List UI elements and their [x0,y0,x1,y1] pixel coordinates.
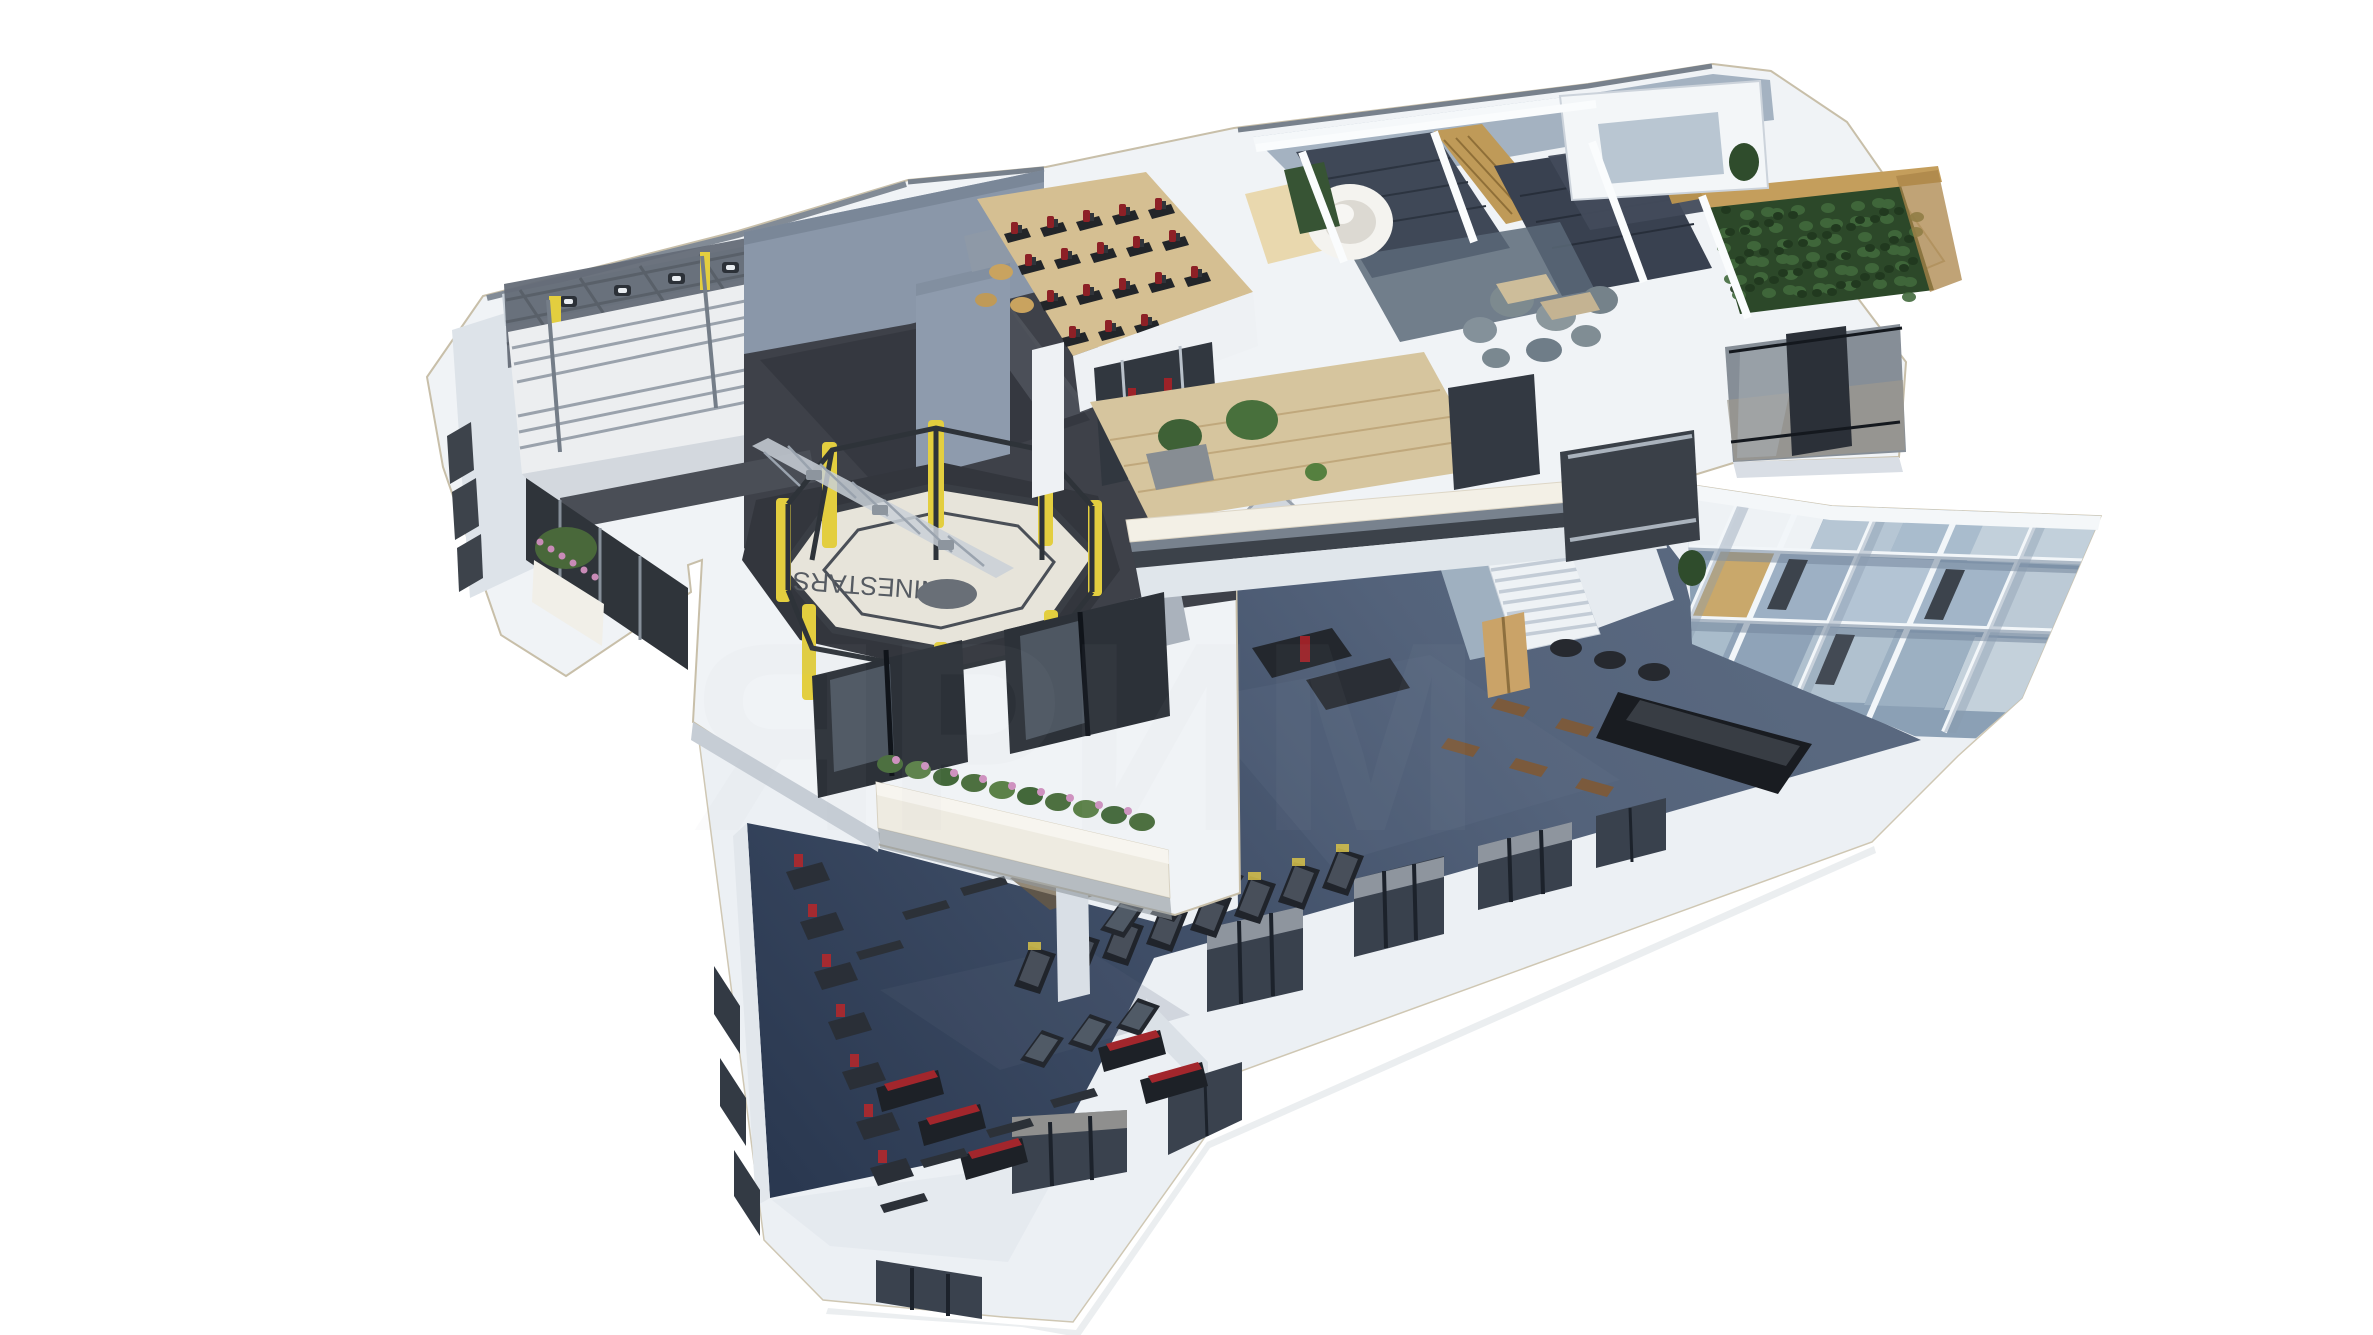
svg-text:ЯРИМ: ЯРИМ [690,587,1483,888]
